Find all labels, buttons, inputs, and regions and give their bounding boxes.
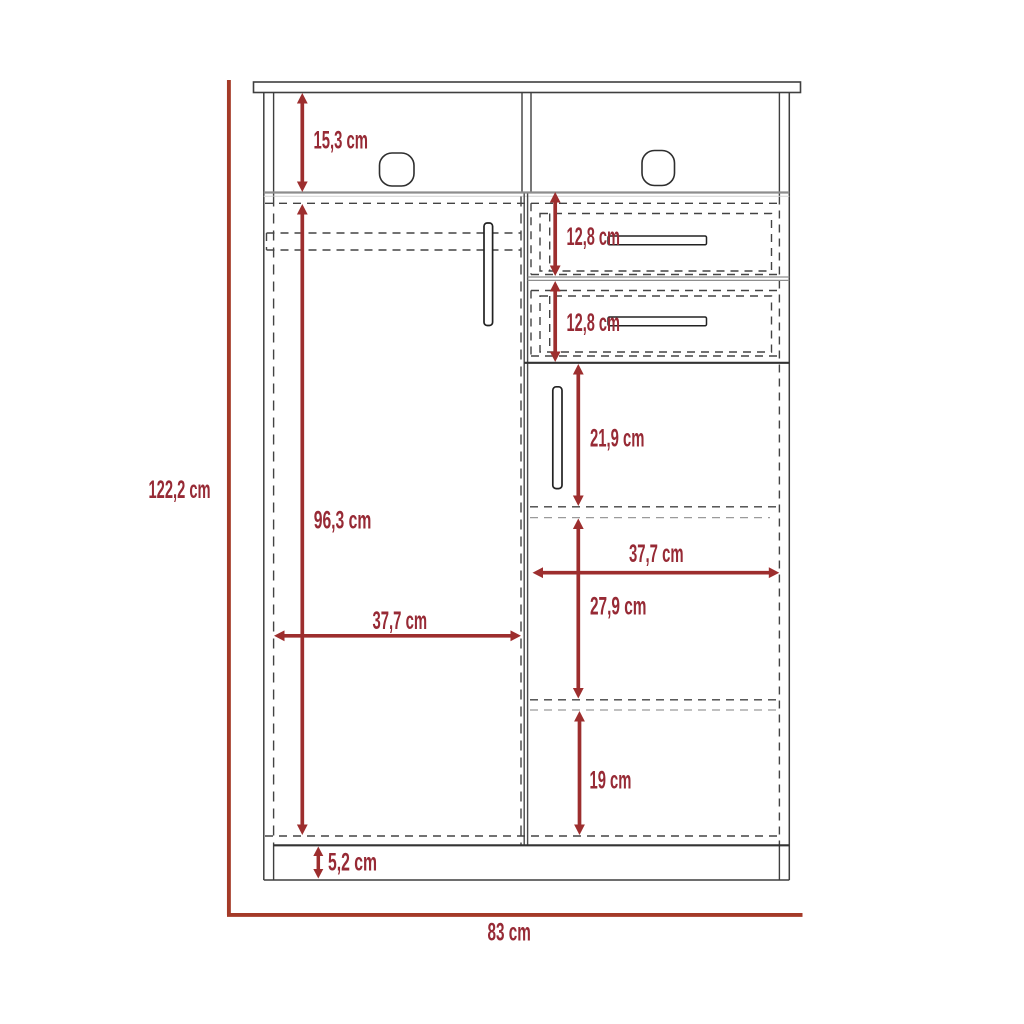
svg-text:122,2 cm: 122,2 cm	[149, 476, 211, 504]
svg-text:21,9 cm: 21,9 cm	[590, 425, 644, 453]
svg-text:15,3 cm: 15,3 cm	[314, 127, 368, 155]
svg-text:12,8 cm: 12,8 cm	[567, 223, 620, 251]
svg-text:96,3 cm: 96,3 cm	[314, 507, 372, 535]
svg-text:19 cm: 19 cm	[590, 767, 632, 795]
svg-text:37,7 cm: 37,7 cm	[629, 540, 684, 568]
svg-text:5,2 cm: 5,2 cm	[328, 849, 377, 877]
svg-text:27,9 cm: 27,9 cm	[590, 593, 646, 621]
svg-text:37,7 cm: 37,7 cm	[373, 607, 428, 635]
svg-text:12,8 cm: 12,8 cm	[567, 309, 620, 337]
svg-text:83 cm: 83 cm	[488, 919, 531, 947]
